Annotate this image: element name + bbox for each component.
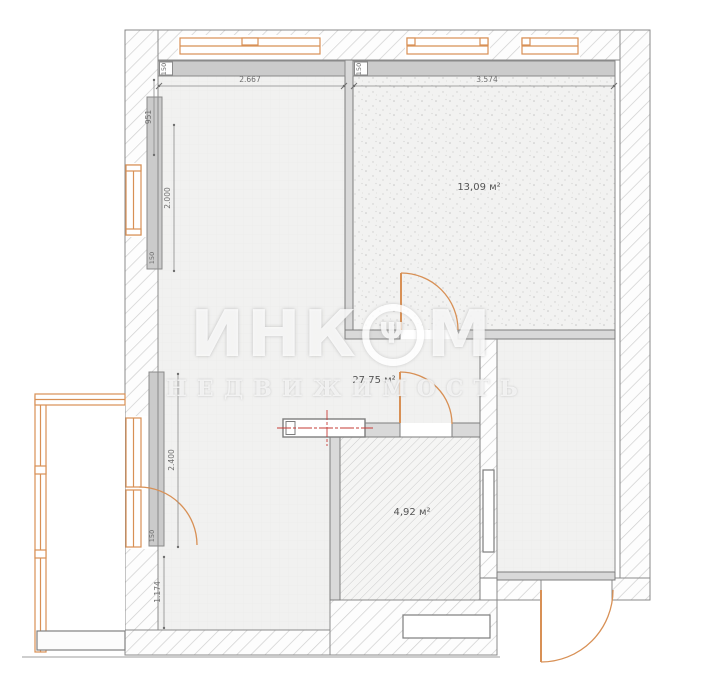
dim-label: 2.667	[239, 75, 261, 84]
window-left-wall	[126, 165, 141, 235]
strip-lower	[149, 372, 164, 546]
wall-entry-left	[497, 578, 541, 600]
sill-band-right-room	[353, 61, 615, 76]
bathroom-floor	[340, 437, 480, 600]
balcony	[35, 394, 125, 652]
dim-label: 1.174	[153, 581, 162, 603]
sill-band-left-room	[158, 61, 345, 76]
dim-label-strip-150-lower: 150	[148, 530, 156, 542]
wall-room13-bottom-right	[458, 330, 615, 339]
floor-plan-page: 2.667 3.574 150 150 951 2.000 150	[0, 0, 701, 694]
wall-bottom-right-room	[497, 572, 615, 580]
wall-entry-right	[612, 578, 650, 600]
floor-plan-canvas: 2.667 3.574 150 150 951 2.000 150	[0, 0, 701, 694]
dim-label: 2.400	[167, 449, 176, 471]
entry-door	[541, 590, 613, 662]
wall-bathroom-right	[480, 339, 497, 578]
balcony-door-unit	[126, 418, 141, 487]
balcony-glazing-mullion	[35, 550, 46, 558]
window-top-right-2	[522, 38, 578, 54]
room-label-living: 27,75 м²	[352, 375, 395, 386]
balcony-window-unit	[126, 490, 141, 547]
balcony-slab	[37, 631, 125, 650]
wall-room13-bottom-left	[345, 330, 400, 339]
dim-label: 951	[144, 110, 153, 125]
dim-label-strip-150-upper: 150	[148, 252, 156, 264]
wall-bottom	[125, 630, 345, 655]
balcony-floor	[46, 405, 125, 632]
dim-label: 3.574	[476, 75, 498, 84]
wall-between-rooms-vertical	[345, 60, 353, 330]
dim-label-corner-150-left: 150	[160, 63, 168, 75]
bottom-right-room-floor	[497, 339, 615, 572]
room-label-top-right: 13,09 м²	[457, 182, 500, 193]
top-right-room-floor	[353, 60, 615, 330]
sill-bands	[158, 61, 615, 76]
room-floors	[158, 60, 615, 630]
wall-bathroom-left	[330, 437, 340, 600]
balcony-glazing-mullion	[35, 466, 46, 474]
dim-label-corner-150-right: 150	[355, 63, 363, 75]
window-top-right-1	[407, 38, 488, 54]
dim-label: 2.000	[163, 187, 172, 209]
wall-bathroom-top-b	[452, 423, 483, 437]
wall-bathroom-top-a	[365, 423, 400, 437]
wall-right	[620, 30, 650, 600]
window-top-left	[180, 38, 320, 54]
room-label-bathroom: 4,92 м²	[394, 507, 431, 518]
bathroom-wall-niche	[483, 470, 494, 552]
bottom-wall-niche	[403, 615, 490, 638]
